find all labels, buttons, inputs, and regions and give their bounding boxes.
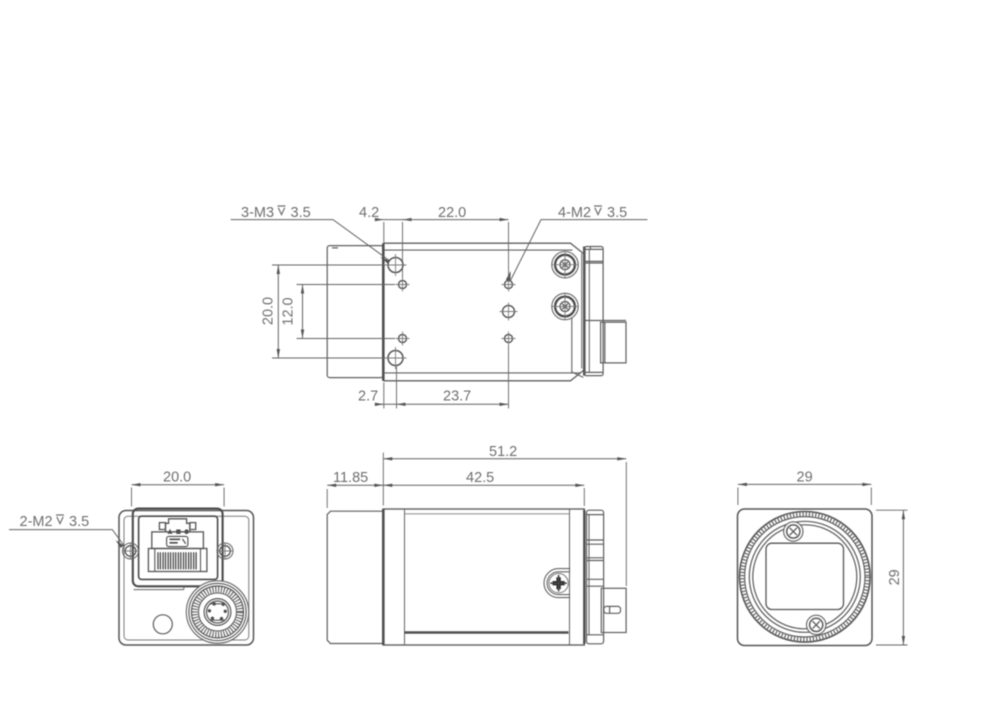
svg-text:42.5: 42.5 — [466, 470, 494, 486]
svg-text:20.0: 20.0 — [261, 297, 277, 325]
svg-text:11.85: 11.85 — [333, 470, 368, 486]
svg-text:23.7: 23.7 — [443, 389, 471, 405]
svg-text:2.7: 2.7 — [358, 389, 378, 405]
svg-text:29: 29 — [797, 470, 813, 486]
svg-text:3.5: 3.5 — [607, 205, 627, 221]
svg-text:3.5: 3.5 — [69, 514, 89, 530]
svg-text:20.0: 20.0 — [163, 470, 191, 486]
svg-text:3.5: 3.5 — [291, 205, 311, 221]
svg-text:22.0: 22.0 — [438, 205, 466, 221]
svg-text:51.2: 51.2 — [489, 444, 517, 460]
svg-text:2-M2: 2-M2 — [20, 514, 53, 530]
svg-text:4-M2: 4-M2 — [558, 205, 591, 221]
svg-text:29: 29 — [887, 569, 903, 585]
svg-text:3-M3: 3-M3 — [241, 205, 274, 221]
svg-text:12.0: 12.0 — [281, 297, 297, 325]
